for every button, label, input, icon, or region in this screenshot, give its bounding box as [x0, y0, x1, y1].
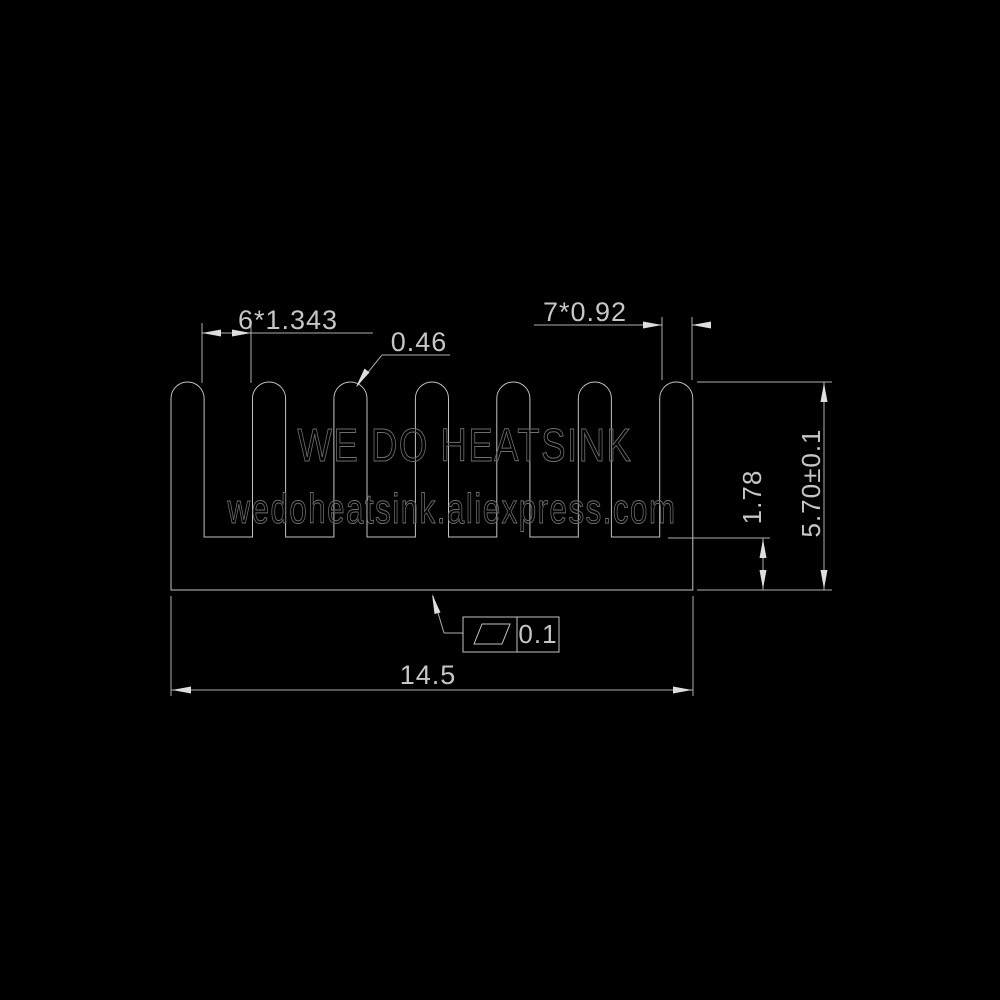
- dimension-base-thickness: 1.78: [668, 470, 770, 590]
- arrowhead: [760, 539, 767, 558]
- arrowhead: [356, 369, 370, 388]
- heatsink-technical-drawing: 6*1.343 0.46 7*0.92 5.70±0.1: [0, 0, 1000, 1000]
- dimension-label-overall-width: 14.5: [400, 660, 457, 690]
- dimension-label-overall-height: 5.70±0.1: [796, 428, 826, 537]
- flatness-tolerance-frame: 0.1: [432, 594, 559, 652]
- dimension-fin-tip-radius: 0.46: [356, 327, 450, 387]
- arrowhead: [821, 383, 828, 402]
- watermark-url: wedoheatsink.aliexpress.com: [227, 485, 677, 532]
- dimension-label-fin-thickness: 7*0.92: [543, 297, 627, 327]
- arrowhead: [202, 330, 221, 337]
- flatness-symbol-icon: [474, 624, 510, 644]
- dimension-fin-thickness: 7*0.92: [534, 297, 711, 380]
- dimension-label-base-thickness: 1.78: [737, 470, 767, 525]
- dimension-overall-width: 14.5: [171, 596, 693, 696]
- arrowhead: [673, 687, 692, 694]
- dimension-label-fin-tip-radius: 0.46: [391, 327, 448, 357]
- watermark-brand: WE DO HEATSINK: [298, 419, 633, 471]
- arrowhead: [692, 322, 711, 329]
- tolerance-value: 0.1: [518, 619, 557, 649]
- drawing-canvas: 6*1.343 0.46 7*0.92 5.70±0.1: [0, 0, 1000, 1000]
- arrowhead: [432, 594, 441, 614]
- dimension-fin-gap: 6*1.343: [202, 305, 373, 383]
- arrowhead: [760, 570, 767, 589]
- dimension-label-fin-gap: 6*1.343: [238, 305, 338, 335]
- arrowhead: [821, 570, 828, 589]
- arrowhead: [172, 687, 191, 694]
- arrowhead: [643, 322, 662, 329]
